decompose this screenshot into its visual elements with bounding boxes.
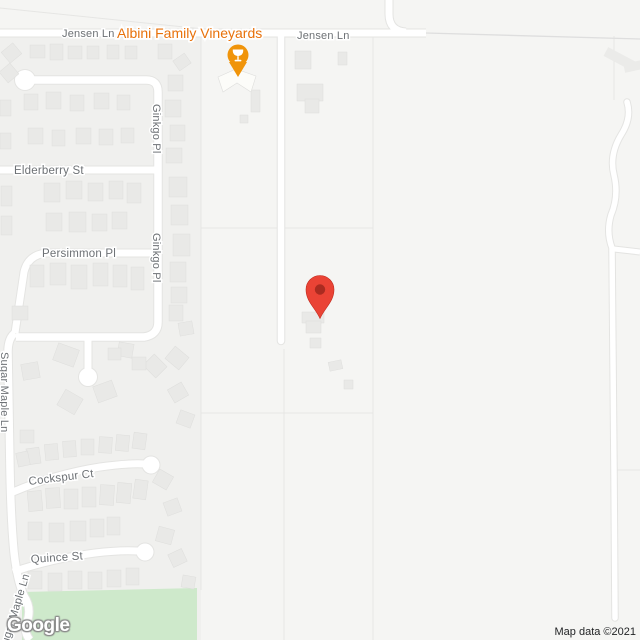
building — [93, 263, 108, 286]
label-sugar-maple-ln: Sugar Maple Ln — [0, 352, 10, 432]
building — [170, 262, 186, 282]
building — [297, 84, 323, 101]
building — [306, 321, 321, 333]
building — [30, 265, 44, 287]
building — [240, 115, 248, 123]
building — [46, 213, 62, 231]
building — [132, 432, 147, 450]
map-viewport[interactable]: Jensen LnAlbini Family VineyardsJensen L… — [0, 0, 640, 640]
building — [170, 125, 185, 141]
label-ginkgo-pl-south: Ginkgo Pl — [150, 233, 162, 283]
building — [295, 51, 311, 69]
building — [168, 75, 183, 91]
building — [131, 267, 144, 290]
building — [158, 44, 172, 59]
building — [125, 46, 137, 59]
building — [112, 212, 127, 229]
building — [82, 487, 96, 507]
building — [21, 362, 41, 381]
road-right-branch — [614, 249, 640, 252]
building — [69, 212, 86, 232]
building — [45, 488, 60, 509]
building — [81, 439, 94, 455]
building — [88, 183, 103, 201]
building — [107, 570, 121, 587]
building — [127, 183, 141, 203]
building — [107, 45, 119, 59]
building — [328, 360, 343, 372]
building — [94, 93, 109, 109]
building — [63, 441, 77, 458]
building — [27, 490, 43, 511]
building — [64, 489, 78, 509]
building — [44, 183, 60, 202]
building — [70, 521, 86, 541]
building — [48, 573, 62, 591]
building — [76, 128, 91, 144]
label-jensen-ln-east: Jensen Ln — [297, 30, 350, 42]
building — [88, 572, 102, 589]
building — [108, 348, 121, 360]
building — [20, 430, 34, 443]
building — [28, 128, 43, 144]
building — [169, 305, 183, 321]
pin-inner-dot — [315, 284, 325, 294]
building — [46, 92, 61, 109]
building — [16, 451, 31, 467]
google-logo[interactable]: Google — [7, 615, 69, 637]
label-persimmon-pl: Persimmon Pl — [42, 248, 116, 260]
building — [70, 95, 84, 111]
building — [0, 133, 11, 149]
building — [251, 90, 260, 112]
building — [166, 148, 182, 163]
building — [1, 216, 12, 235]
building — [24, 94, 38, 110]
building — [113, 265, 127, 287]
culdesac-3 — [137, 544, 154, 561]
building — [12, 306, 28, 320]
building — [109, 181, 123, 199]
culdesac-2 — [143, 457, 160, 474]
building — [50, 44, 63, 60]
building — [50, 263, 66, 285]
building — [133, 479, 149, 500]
building — [52, 130, 65, 146]
label-elderberry-st: Elderberry St — [14, 165, 84, 177]
label-ginkgo-pl-north: Ginkgo Pl — [150, 104, 162, 154]
building — [171, 287, 187, 303]
building — [99, 437, 113, 454]
map-attribution: Map data ©2021 — [555, 626, 637, 638]
label-albini-family-vineyards: Albini Family Vineyards — [117, 25, 262, 41]
road-jensen-ln-east-minor — [426, 33, 640, 39]
building — [116, 482, 132, 503]
building — [305, 99, 319, 113]
building — [115, 434, 129, 451]
building — [99, 485, 114, 506]
building — [99, 129, 113, 145]
building — [44, 443, 58, 460]
building — [0, 100, 11, 116]
building — [117, 95, 130, 110]
building — [126, 568, 139, 585]
building — [344, 380, 353, 389]
building — [68, 46, 82, 59]
building — [68, 571, 82, 589]
building — [173, 234, 190, 256]
building — [181, 575, 196, 589]
label-jensen-ln-west: Jensen Ln — [62, 28, 115, 40]
building — [30, 45, 45, 58]
building — [107, 517, 120, 535]
culdesac-1 — [79, 368, 97, 386]
building — [28, 522, 42, 540]
building — [169, 177, 187, 197]
building — [178, 321, 194, 336]
building — [71, 265, 87, 289]
building — [171, 205, 188, 225]
building — [132, 357, 146, 370]
building — [90, 519, 104, 537]
building — [92, 214, 107, 231]
building — [66, 181, 82, 199]
building — [49, 523, 64, 542]
building — [87, 46, 99, 59]
building — [310, 338, 321, 348]
building — [165, 100, 181, 117]
building — [1, 186, 12, 206]
building — [338, 52, 347, 65]
building — [121, 128, 134, 143]
